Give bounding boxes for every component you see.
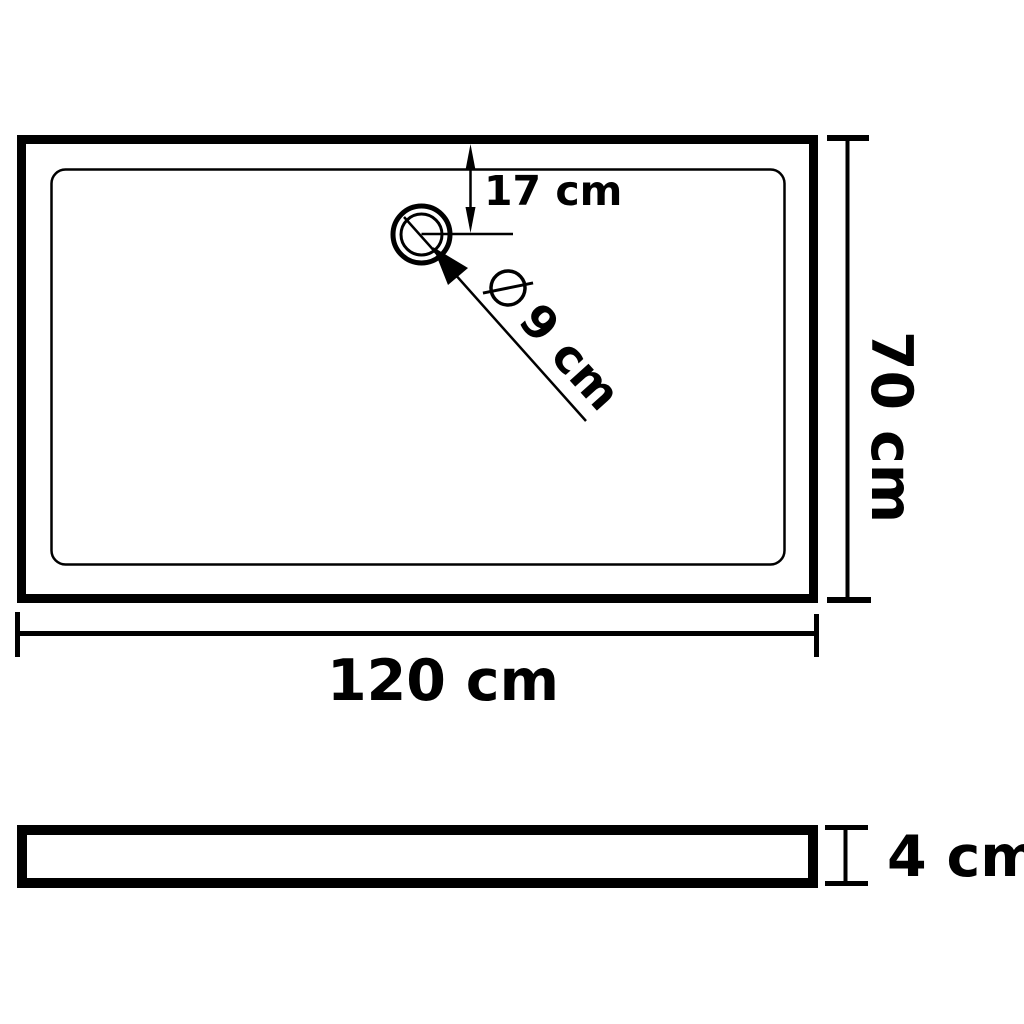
width-dimension: 70 cm bbox=[827, 138, 924, 600]
diagram-drawing: 17 cm 9 cm 70 cm bbox=[0, 0, 1024, 1024]
thickness-dimension: 4 cm bbox=[825, 824, 1024, 890]
side-profile-outline bbox=[22, 830, 813, 883]
length-dimension: 120 cm bbox=[18, 612, 817, 714]
side-view: 4 cm bbox=[22, 824, 1024, 890]
drain-offset-label: 17 cm bbox=[484, 167, 622, 215]
length-label: 120 cm bbox=[327, 648, 559, 714]
width-label: 70 cm bbox=[858, 331, 924, 523]
thickness-label: 4 cm bbox=[887, 824, 1024, 890]
top-view: 17 cm 9 cm bbox=[22, 140, 814, 599]
shower-tray-dimension-diagram: 17 cm 9 cm 70 cm bbox=[0, 0, 1024, 1024]
